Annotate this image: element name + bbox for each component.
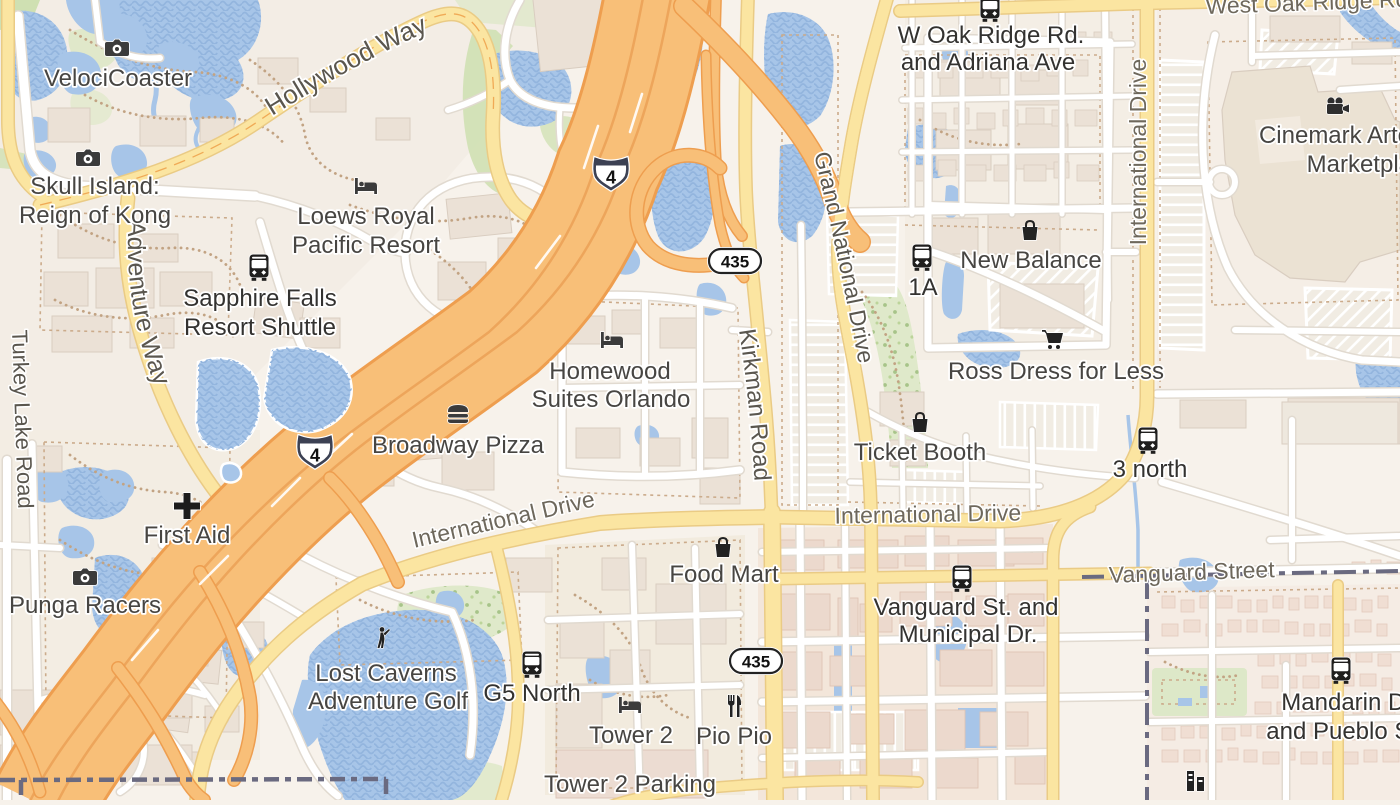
svg-text:1A: 1A bbox=[908, 274, 937, 301]
svg-text:Adventure Golf: Adventure Golf bbox=[308, 688, 468, 715]
svg-text:Skull Island:: Skull Island: bbox=[30, 173, 159, 200]
svg-text:Mandarin Dr.: Mandarin Dr. bbox=[1281, 689, 1400, 716]
svg-text:435: 435 bbox=[742, 653, 770, 672]
svg-text:Vanguard St. and: Vanguard St. and bbox=[873, 594, 1058, 621]
svg-text:Ticket Booth: Ticket Booth bbox=[854, 439, 987, 466]
svg-text:435: 435 bbox=[721, 253, 749, 272]
svg-text:Pacific Resort: Pacific Resort bbox=[292, 232, 440, 259]
svg-text:Municipal Dr.: Municipal Dr. bbox=[899, 621, 1038, 648]
svg-text:Broadway Pizza: Broadway Pizza bbox=[372, 432, 545, 459]
svg-text:Tower 2: Tower 2 bbox=[589, 722, 673, 749]
svg-text:3 north: 3 north bbox=[1113, 456, 1188, 483]
svg-text:International Drive: International Drive bbox=[1125, 59, 1151, 246]
svg-text:4: 4 bbox=[606, 168, 616, 188]
svg-text:4: 4 bbox=[310, 446, 320, 466]
svg-text:G5 North: G5 North bbox=[483, 680, 580, 707]
svg-text:Cinemark Artegon: Cinemark Artegon bbox=[1259, 122, 1400, 149]
svg-text:First Aid: First Aid bbox=[144, 522, 231, 549]
svg-text:Suites Orlando: Suites Orlando bbox=[532, 386, 691, 413]
svg-text:Tower 2 Parking: Tower 2 Parking bbox=[544, 771, 716, 798]
svg-text:New Balance: New Balance bbox=[960, 247, 1101, 274]
svg-text:Lost Caverns: Lost Caverns bbox=[315, 660, 456, 687]
svg-text:Reign of Kong: Reign of Kong bbox=[19, 202, 171, 229]
svg-text:Marketplace: Marketplace bbox=[1307, 151, 1400, 178]
svg-text:W Oak Ridge Rd.: W Oak Ridge Rd. bbox=[898, 22, 1085, 49]
svg-text:Sapphire Falls: Sapphire Falls bbox=[183, 285, 336, 312]
svg-text:and Adriana Ave: and Adriana Ave bbox=[901, 49, 1075, 76]
svg-text:Punga Racers: Punga Racers bbox=[9, 592, 161, 619]
svg-text:International Drive: International Drive bbox=[834, 499, 1021, 528]
svg-text:Homewood: Homewood bbox=[549, 358, 670, 385]
svg-text:VelociCoaster: VelociCoaster bbox=[44, 65, 192, 92]
svg-text:Pio Pio: Pio Pio bbox=[696, 723, 772, 750]
svg-text:Loews Royal: Loews Royal bbox=[297, 203, 434, 230]
svg-text:and Pueblo St.: and Pueblo St. bbox=[1266, 718, 1400, 745]
svg-text:Ross Dress for Less: Ross Dress for Less bbox=[948, 358, 1164, 385]
svg-text:Food Mart: Food Mart bbox=[669, 561, 779, 588]
svg-text:Resort Shuttle: Resort Shuttle bbox=[184, 314, 336, 341]
